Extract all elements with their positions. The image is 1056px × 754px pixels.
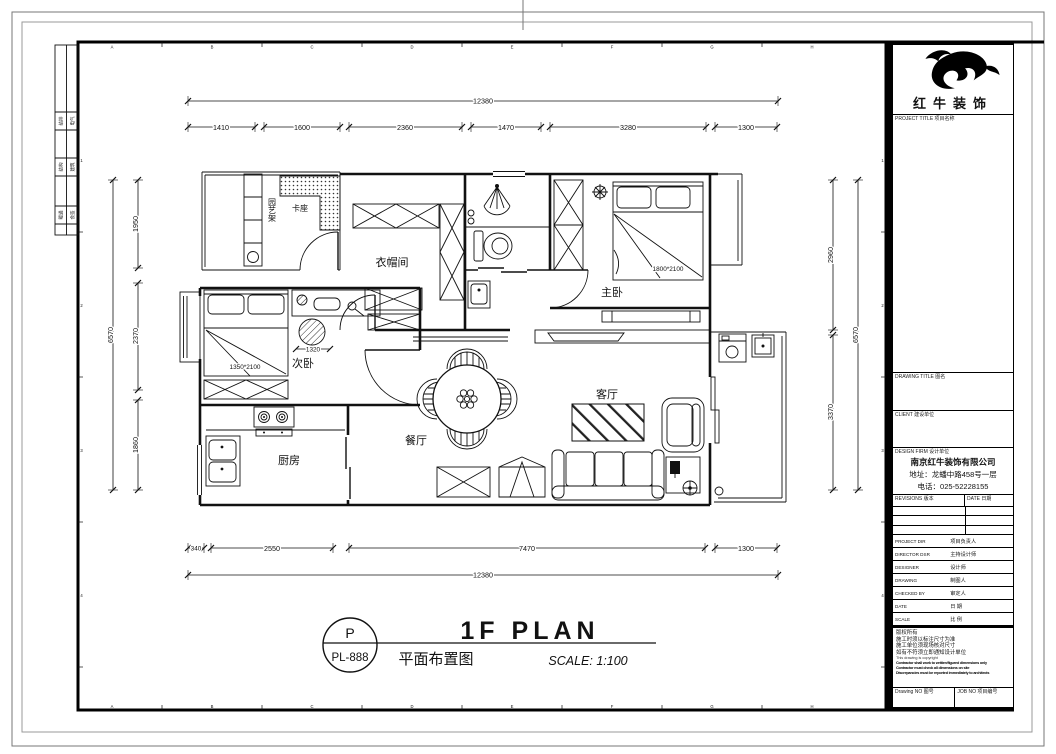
shoe-cabinet <box>499 457 545 497</box>
dimensions: 12380 1410 1600 2360 1470 3280 1300 340 … <box>106 96 863 580</box>
room-label-kitchen: 厨房 <box>278 454 300 467</box>
revision-row <box>893 507 1013 516</box>
plan-title-stamp: P PL-888 1F PLAN 平面布置图 SCALE: 1:100 <box>323 617 656 672</box>
signoff-cell: 电气 <box>69 116 75 125</box>
stool-icon <box>299 319 325 345</box>
signoff-cell: 暖通 <box>57 210 64 219</box>
revision-row <box>893 516 1013 525</box>
project-dir-row: PROJECT DIR项目负责人 <box>893 535 1013 548</box>
signoff-cell: 给排 <box>57 116 64 125</box>
svg-text:1410: 1410 <box>213 123 229 132</box>
svg-text:7470: 7470 <box>519 544 535 553</box>
svg-text:1300: 1300 <box>738 123 754 132</box>
date-row: DATE日 期 <box>893 600 1013 613</box>
svg-text:1: 1 <box>80 158 83 163</box>
plan-title-cn: 平面布置图 <box>398 651 473 668</box>
svg-text:3: 3 <box>881 448 884 453</box>
svg-text:2: 2 <box>881 303 884 308</box>
svg-text:12380: 12380 <box>473 571 493 580</box>
plan-title-en: 1F PLAN <box>460 617 599 645</box>
drawing-title-label: DRAWING TITLE 图名 <box>893 373 1013 380</box>
svg-text:6570: 6570 <box>851 327 860 343</box>
dining-set <box>417 349 517 449</box>
tv-cabinet <box>535 330 710 343</box>
svg-text:12380: 12380 <box>473 97 493 106</box>
job-no-label: JOB NO 项目编号 <box>955 688 999 695</box>
svg-text:1300: 1300 <box>738 544 754 553</box>
dim-left: 6570 1950 2370 1860 <box>106 177 143 493</box>
design-firm-box: DESIGN FIRM 设计单位 南京红牛装饰有限公司 地址：龙蟠中路458号一… <box>893 448 1013 495</box>
svg-text:E: E <box>511 704 514 709</box>
svg-text:6570: 6570 <box>106 327 115 343</box>
revisions-label: REVISIONS 版本 <box>893 495 965 506</box>
svg-text:340: 340 <box>191 546 202 553</box>
client-box: CLIENT 建设单位 <box>893 411 1013 448</box>
doors <box>300 232 588 499</box>
svg-text:C: C <box>310 704 313 709</box>
balcony-sink-icon <box>752 333 774 357</box>
project-title-label: PROJECT TITLE 项目名称 <box>893 115 1013 122</box>
svg-text:2360: 2360 <box>397 123 413 132</box>
svg-text:1: 1 <box>881 158 884 163</box>
shower-icon <box>468 184 510 224</box>
side-table-lamp <box>666 457 700 495</box>
kitchen-counter <box>206 430 345 486</box>
svg-text:3370: 3370 <box>826 404 835 420</box>
stamp-letter: P <box>345 625 354 641</box>
sideboard <box>437 467 490 497</box>
room-label-second: 次卧 <box>292 356 314 370</box>
svg-text:1860: 1860 <box>131 437 140 453</box>
closet-wardrobes <box>353 204 464 330</box>
ceiling-fan-icon <box>592 184 608 200</box>
stamp-code: PL-888 <box>331 652 368 664</box>
svg-text:2550: 2550 <box>264 544 280 553</box>
firm-phone: 电话：025-52228155 <box>893 481 1013 492</box>
svg-text:1320: 1320 <box>306 346 321 353</box>
sofa <box>552 450 664 500</box>
rug <box>572 404 644 441</box>
room-label-closet: 衣帽间 <box>376 255 409 269</box>
door-bathroom-sliding-icon <box>478 268 527 272</box>
furniture <box>204 174 774 500</box>
svg-text:F: F <box>611 704 614 709</box>
brand-name: 红牛装饰 <box>913 93 993 112</box>
dressing-table <box>292 290 380 316</box>
svg-text:3: 3 <box>80 448 83 453</box>
bull-logo-icon <box>898 45 1008 95</box>
drawing-sheet: 给排 电气 结构 建筑 暖通 会签 AABBCCDDEEFFGGHH112233… <box>0 0 1056 754</box>
design-firm-label: DESIGN FIRM 设计单位 <box>893 448 1013 455</box>
client-label: CLIENT 建设单位 <box>893 411 1013 418</box>
dining-bench <box>413 337 508 341</box>
drawing-row: DRAWING制图人 <box>893 574 1013 587</box>
drawing-title-box: DRAWING TITLE 图名 <box>893 373 1013 411</box>
door-second-bedroom-icon <box>365 350 420 405</box>
signoff-strip: 给排 电气 结构 建筑 暖通 会签 <box>55 45 78 235</box>
dim-bottom-segments: 340 2550 7470 1300 <box>185 543 780 553</box>
signoff-cell: 会签 <box>69 210 76 219</box>
revisions-date-label: DATE 日期 <box>965 495 1013 506</box>
scale-row: SCALE比 例 <box>893 613 1013 626</box>
svg-text:2960: 2960 <box>826 247 835 263</box>
kitchen-sink-icon <box>209 440 236 482</box>
svg-text:B: B <box>211 704 214 709</box>
svg-text:4: 4 <box>881 593 884 598</box>
toilet-icon <box>474 231 512 261</box>
svg-text:H: H <box>810 45 813 50</box>
plan-scale: SCALE: 1:100 <box>548 654 627 668</box>
signoff-cell: 结构 <box>57 162 64 171</box>
hall-washbasin-icon <box>468 281 490 308</box>
svg-text:F: F <box>611 45 614 50</box>
room-label-booth: 卡座 <box>292 203 308 213</box>
svg-text:3280: 3280 <box>620 123 636 132</box>
svg-text:D: D <box>410 704 413 709</box>
dim-inner: 1320 <box>293 346 333 353</box>
dim-top-segments: 1410 1600 2360 1470 3280 1300 <box>185 122 780 132</box>
door-balcony-icon <box>300 232 338 270</box>
tv-icon <box>548 333 624 341</box>
logo-area: 红牛装饰 <box>893 45 1013 115</box>
door-closet-icon <box>340 295 375 330</box>
floor-drain-icon <box>715 487 723 495</box>
revision-row <box>893 526 1013 534</box>
stove-icon <box>254 407 294 436</box>
svg-text:2370: 2370 <box>131 328 140 344</box>
copyright-box: 版权所有 施工时须以标注尺寸为准 施工单位须现场核对尺寸 如有不符须立即通知设计… <box>893 626 1013 688</box>
svg-text:E: E <box>511 45 514 50</box>
director-row: DIRECTOR DSR主持设计师 <box>893 548 1013 561</box>
booth-bench <box>280 176 340 230</box>
checked-by-row: CHECKED BY审定人 <box>893 587 1013 600</box>
room-label-master: 主卧 <box>601 286 623 299</box>
firm-name: 南京红牛装饰有限公司 <box>893 456 1013 468</box>
armchair <box>662 398 704 452</box>
bed-size-master: 1800*2100 <box>653 266 684 273</box>
drawing-no-label: Drawing NO 图号 <box>893 688 954 695</box>
garden-rack <box>244 174 262 266</box>
dim-right: 6570 2960 3370 <box>826 177 863 493</box>
svg-text:C: C <box>310 45 313 50</box>
title-block: 红牛装饰 PROJECT TITLE 项目名称 DRAWING TITLE 图名… <box>886 42 1014 710</box>
door-master-bedroom-icon <box>550 270 588 308</box>
svg-text:A: A <box>111 45 114 50</box>
svg-text:1950: 1950 <box>131 216 140 232</box>
bed-size-second: 1350*2100 <box>230 364 261 371</box>
designer-row: DESIGNER设计师 <box>893 561 1013 574</box>
dim-top-total: 12380 <box>185 96 781 106</box>
svg-text:B: B <box>211 45 214 50</box>
svg-text:G: G <box>710 704 713 709</box>
second-wardrobe <box>204 380 288 399</box>
dim-bottom-total: 12380 <box>185 570 781 580</box>
svg-text:H: H <box>810 704 813 709</box>
revisions-table: REVISIONS 版本 DATE 日期 <box>893 495 1013 535</box>
svg-text:D: D <box>410 45 413 50</box>
svg-text:4: 4 <box>80 593 83 598</box>
drawing-number-row: Drawing NO 图号 JOB NO 项目编号 <box>893 688 1013 707</box>
signoff-cell: 建筑 <box>69 162 76 171</box>
master-cabinet <box>602 311 700 322</box>
svg-text:2: 2 <box>80 303 83 308</box>
room-label-dining: 餐厅 <box>405 433 427 447</box>
washing-machine-icon <box>719 334 746 362</box>
svg-text:A: A <box>111 704 114 709</box>
svg-text:1470: 1470 <box>498 123 514 132</box>
svg-text:G: G <box>710 45 713 50</box>
room-label-living: 客厅 <box>596 387 618 401</box>
door-kitchen-sliding-icon <box>346 437 350 499</box>
room-label-garden-rack: 园艺架 <box>268 198 277 223</box>
firm-address: 地址：龙蟠中路458号一层 <box>893 469 1013 480</box>
master-wardrobe <box>554 180 583 270</box>
project-title-box: PROJECT TITLE 项目名称 <box>893 115 1013 373</box>
svg-text:1600: 1600 <box>294 123 310 132</box>
